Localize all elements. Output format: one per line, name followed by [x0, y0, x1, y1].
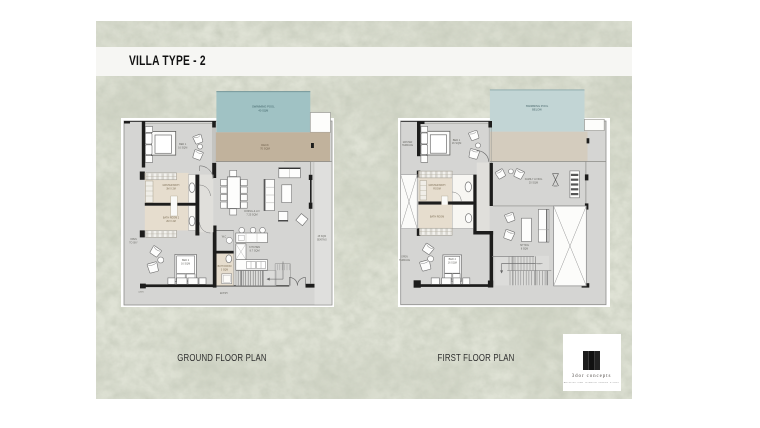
svg-text:ENTRY: ENTRY [220, 292, 228, 295]
svg-text:SITTING: SITTING [520, 245, 529, 247]
svg-text:16 SQM: 16 SQM [181, 263, 190, 266]
svg-text:8.7 SQM: 8.7 SQM [250, 250, 260, 253]
svg-text:MASTER: MASTER [403, 141, 413, 144]
svg-text:45 SQM: 45 SQM [318, 236, 327, 238]
svg-text:BATH ROOM: BATH ROOM [430, 215, 444, 218]
svg-text:SWIMMING POOL: SWIMMING POOL [526, 104, 549, 108]
svg-text:W.C: W.C [222, 235, 227, 238]
svg-text:16 SQM: 16 SQM [452, 141, 462, 145]
svg-text:TERRACE: TERRACE [402, 144, 413, 147]
svg-text:16 SQM: 16 SQM [448, 262, 457, 265]
svg-text:3 SQM: 3 SQM [221, 270, 228, 272]
svg-text:SWIMMING POOL: SWIMMING POOL [252, 105, 275, 109]
svg-text:20 SQM: 20 SQM [529, 181, 538, 184]
svg-text:2M X 2M: 2M X 2M [166, 220, 176, 223]
svg-text:40 SQM: 40 SQM [258, 108, 269, 112]
svg-text:70 SQM: 70 SQM [260, 147, 271, 151]
svg-text:TERRACE: TERRACE [399, 259, 410, 262]
svg-text:3M X 2M: 3M X 2M [166, 188, 176, 191]
svg-text:BED 1: BED 1 [453, 138, 461, 142]
svg-text:BELOW: BELOW [532, 108, 542, 112]
svg-text:TO SKY: TO SKY [129, 242, 138, 244]
svg-text:DECK: DECK [261, 143, 269, 147]
svg-text:BATH ROOM: BATH ROOM [218, 265, 232, 268]
svg-text:4,870: 4,870 [138, 292, 144, 294]
svg-text:7.25 SQM: 7.25 SQM [246, 214, 257, 217]
svg-text:SEATING: SEATING [317, 238, 327, 241]
svg-text:OPEN: OPEN [401, 256, 408, 258]
svg-text:8 SQM: 8 SQM [521, 248, 528, 250]
svg-text:16 SQM: 16 SQM [178, 146, 187, 149]
svg-text:OPEN: OPEN [130, 239, 137, 241]
svg-text:ROOM: ROOM [433, 187, 440, 190]
